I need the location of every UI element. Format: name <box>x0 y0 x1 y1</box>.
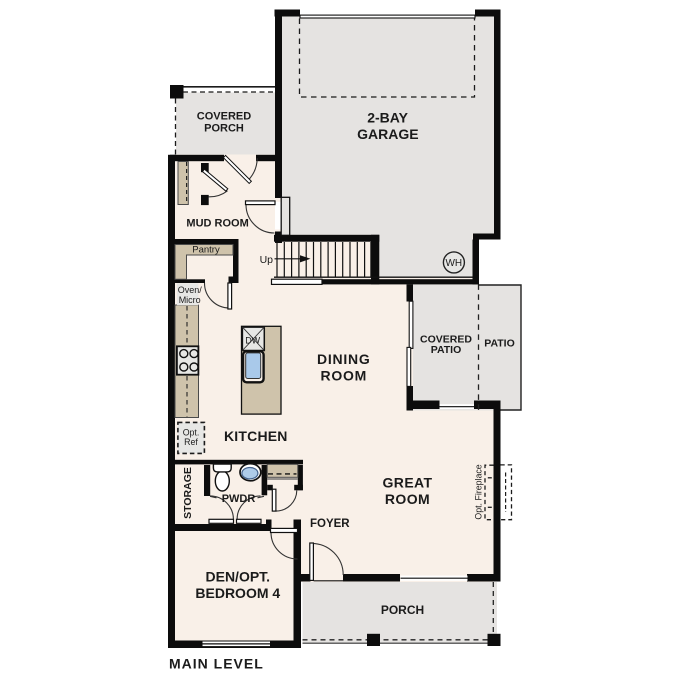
svg-text:GARAGE: GARAGE <box>357 126 418 142</box>
svg-text:KITCHEN: KITCHEN <box>224 428 288 444</box>
svg-text:PATIO: PATIO <box>484 338 515 350</box>
svg-text:PORCH: PORCH <box>204 123 244 135</box>
svg-text:STORAGE: STORAGE <box>182 467 194 519</box>
svg-text:MAIN LEVEL: MAIN LEVEL <box>169 655 264 671</box>
svg-text:Oven/: Oven/ <box>178 285 203 295</box>
svg-text:PWDR: PWDR <box>222 493 256 505</box>
svg-text:DEN/OPT.: DEN/OPT. <box>206 569 271 585</box>
svg-text:Micro: Micro <box>179 295 201 305</box>
svg-text:Pantry: Pantry <box>192 245 220 256</box>
svg-text:PATIO: PATIO <box>431 344 462 356</box>
svg-text:BEDROOM 4: BEDROOM 4 <box>195 585 280 601</box>
svg-text:ROOM: ROOM <box>385 491 430 507</box>
svg-text:WH: WH <box>445 258 462 269</box>
svg-text:COVERED: COVERED <box>197 111 251 123</box>
svg-text:Up: Up <box>260 254 274 266</box>
svg-text:2-BAY: 2-BAY <box>367 110 408 126</box>
svg-text:GREAT: GREAT <box>383 475 433 491</box>
svg-text:MUD ROOM: MUD ROOM <box>186 218 248 230</box>
svg-text:ROOM: ROOM <box>321 368 368 384</box>
svg-text:Ref: Ref <box>184 437 198 447</box>
svg-text:DW: DW <box>245 336 260 346</box>
svg-text:PORCH: PORCH <box>381 603 424 617</box>
svg-text:Opt. Fireplace: Opt. Fireplace <box>474 464 484 519</box>
svg-text:DINING: DINING <box>317 351 371 367</box>
svg-text:FOYER: FOYER <box>310 518 350 530</box>
